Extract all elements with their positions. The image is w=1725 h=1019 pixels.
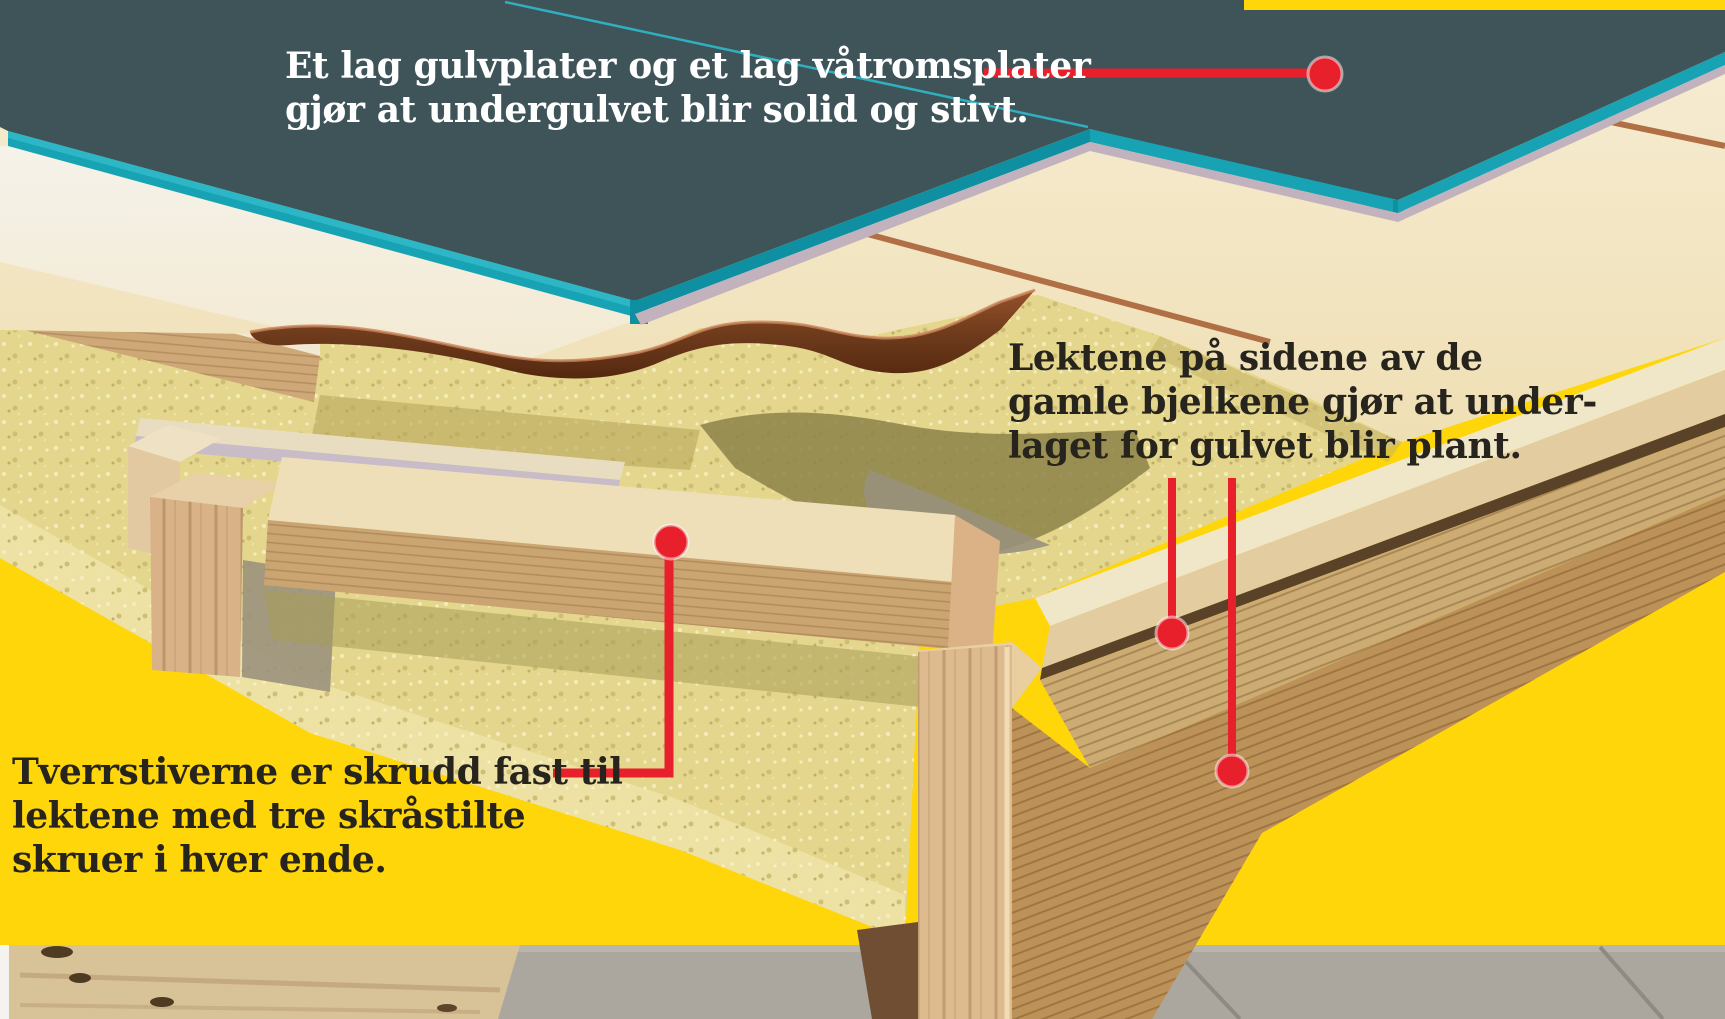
annotation-cross-braces: Tverrstiverne er skrudd fast til lektene… bbox=[12, 750, 623, 882]
annotation-subfloor-layers: Et lag gulvplater og et lag våtromsplate… bbox=[285, 44, 1090, 132]
illustration-page: Et lag gulvplater og et lag våtromsplate… bbox=[0, 0, 1725, 1019]
callout-dot-brace bbox=[654, 525, 688, 559]
joist-end-grain bbox=[150, 497, 243, 677]
plywood-knot bbox=[437, 1004, 457, 1012]
callout-dot-batten-1 bbox=[1156, 617, 1188, 649]
plywood-knot bbox=[150, 997, 174, 1007]
callout-dot-subfloor bbox=[1308, 57, 1342, 91]
annotation-battens-on-joists: Lektene på sidene av de gamle bjelkene g… bbox=[1008, 336, 1597, 468]
photo-edge-sliver bbox=[0, 945, 9, 1019]
plywood-knot bbox=[69, 973, 91, 983]
top-margin-strip bbox=[1244, 0, 1725, 10]
plywood-knot bbox=[41, 946, 73, 958]
joist-end-block-grain bbox=[918, 645, 1012, 1019]
callout-dot-batten-2 bbox=[1216, 755, 1248, 787]
